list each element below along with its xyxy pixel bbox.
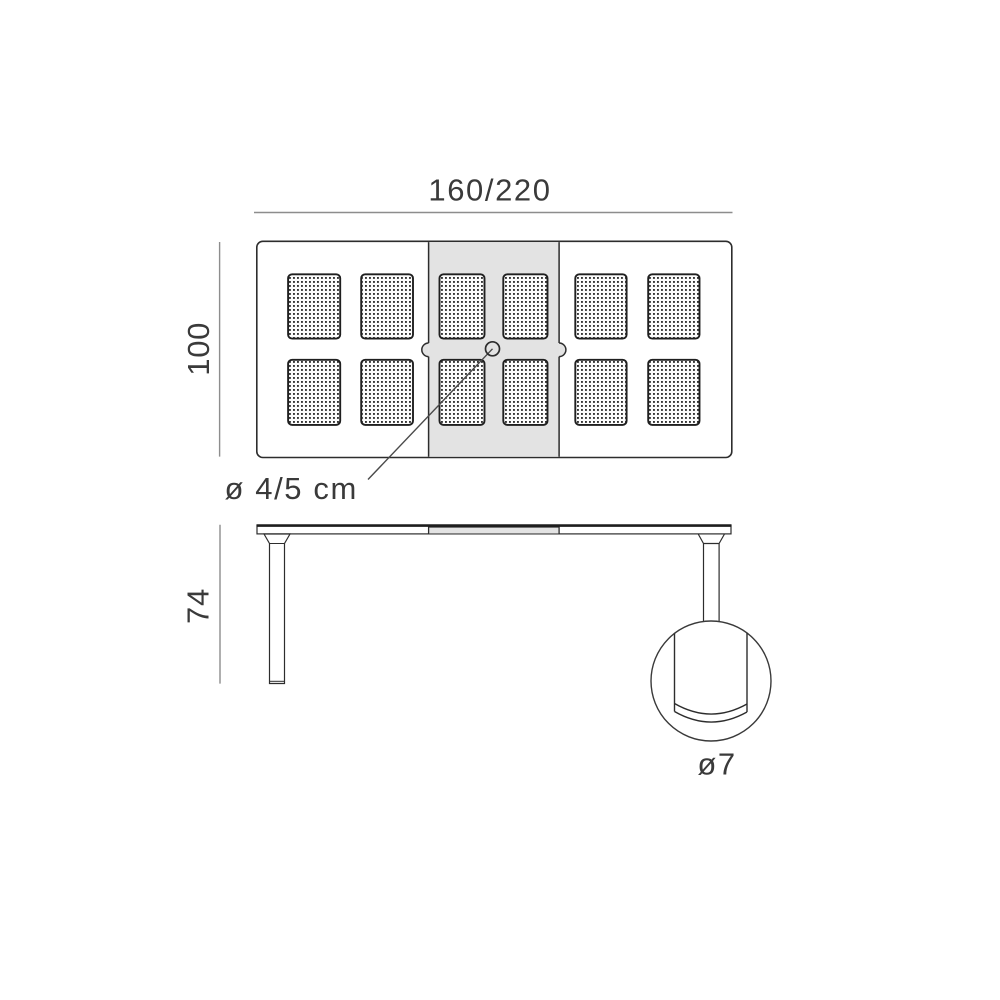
svg-text:100: 100 [181,322,216,376]
svg-text:74: 74 [181,588,216,624]
svg-text:ø 4/5 cm: ø 4/5 cm [225,471,358,506]
svg-text:160/220: 160/220 [428,173,551,208]
svg-text:ø7: ø7 [697,747,736,782]
